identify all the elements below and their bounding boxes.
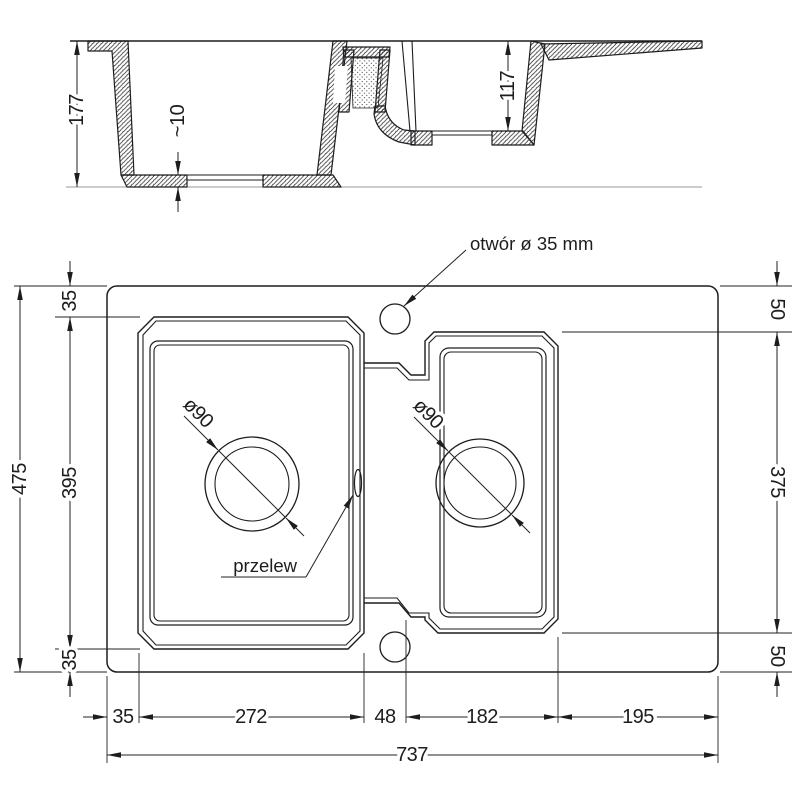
plan-dimensions: 475 35 395 35 50 375 50 35 272 48 182 19… [9,261,792,766]
dim-left-margin: 35 [112,706,134,728]
dim-total-width: 737 [396,744,428,766]
section-bowl1-bottom-right [263,175,341,187]
dim-bottom-step: ~10 [167,104,189,137]
dim-divider-gap: 48 [374,706,396,728]
dim-edge-bottom: 50 [766,645,788,667]
drain-right-arrow-lower [512,515,530,533]
section-divider-foot [374,106,415,145]
section-bowl1-drain-platform [187,175,263,180]
dim-bowl1-width: 272 [235,706,267,728]
section-left-wall [88,41,134,175]
section-bowl2-bottom-left [411,131,432,145]
dim-drainer-width: 195 [622,706,654,728]
bowl2-floor-inner [444,352,542,613]
section-bowl2-right-wall [522,41,545,145]
sink-outline [107,286,718,672]
dim-edge-top: 50 [766,298,788,320]
dim-drain-left: ø90 [179,394,218,433]
dim-top-margin: 35 [59,290,81,312]
section-divider-core [351,58,383,108]
section-drainboard-wedge [541,41,702,60]
dim-depth-right: 117 [497,70,519,101]
drain-left-arrow-lower [286,518,304,536]
section-bowl2-drain-platform [432,131,492,135]
bowl2-rim-outer [364,332,558,633]
dim-bottom-margin: 35 [59,649,81,671]
section-bowl2-wall-line-a [402,41,410,131]
section-view: 177 ~10 117 [66,41,702,212]
tap-hole-bottom [380,632,410,662]
dim-drain-right: ø90 [409,395,448,434]
label-overflow: przelew [233,555,297,576]
dim-total-height: 475 [9,463,31,495]
section-bowl1-bottom-left [121,175,187,187]
plan-view: ø90 ø90 otwór ø 35 mm przelew [107,233,718,672]
tap-hole-top [380,304,410,334]
drain-right-diameter-line [449,452,511,514]
dim-depth-left: 177 [66,94,88,126]
tap-hole-leader [404,250,466,306]
dim-bowl2-width: 182 [466,706,498,728]
section-bowl2-wall-line-b [412,41,416,131]
bowl2-floor-outer [440,348,546,617]
dim-bowl-span: 395 [59,467,81,499]
drain-left-diameter-line [219,451,285,517]
sink-technical-drawing: 177 ~10 117 ø90 ø90 [0,0,800,800]
label-tap-hole: otwór ø 35 mm [470,233,593,254]
bowl2-rim-inner [364,336,554,629]
dim-inner-span: 375 [766,466,788,498]
overflow-leader [306,495,353,577]
